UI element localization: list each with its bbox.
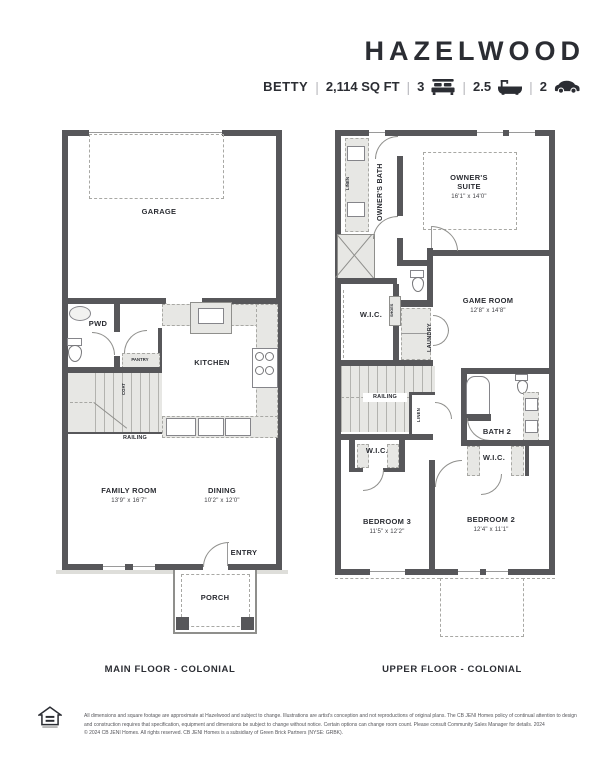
baths-count: 2.5 <box>473 79 491 94</box>
room-label-kitchen: KITCHEN <box>180 359 244 368</box>
window <box>477 130 503 136</box>
wall <box>525 446 529 476</box>
wall <box>335 569 370 575</box>
room-dims-bedroom2: 12'4" x 11'1" <box>449 527 533 533</box>
plan-title: HAZELWOOD <box>365 38 586 65</box>
wall <box>429 460 435 569</box>
room-label-wic-bed3: W.I.C. <box>354 447 400 456</box>
closet-label-linen-mid: LINEN <box>417 400 427 430</box>
room-dims-family: 13'9" x 16'7" <box>89 498 169 504</box>
room-label-owners-bath: OWNER'S BATH <box>377 158 390 226</box>
equal-housing-logo <box>38 706 62 728</box>
beds-count: 3 <box>417 79 424 94</box>
window-line <box>370 571 405 572</box>
wall <box>222 130 282 136</box>
wall <box>385 130 477 136</box>
railing-label: RAILING <box>363 393 407 402</box>
room-label-wic-owner: W.I.C. <box>346 311 396 320</box>
window <box>509 130 535 136</box>
floor-plan-sheet: HAZELWOOD BETTY | 2,114 SQ FT | 3 | 2.5 … <box>0 0 609 768</box>
wall <box>335 278 397 284</box>
door-arc <box>467 418 490 441</box>
door-arc <box>435 402 452 419</box>
toilet <box>412 277 424 292</box>
window-line <box>509 132 535 133</box>
burner <box>255 366 264 375</box>
wall <box>549 130 555 575</box>
porch-wall <box>255 570 257 634</box>
porch-wall <box>173 632 257 634</box>
door-arc <box>363 470 384 491</box>
porch-column <box>241 617 254 630</box>
disclaimer: All dimensions and square footage are ap… <box>84 712 584 738</box>
sqft-value: 2,114 SQ FT <box>326 79 400 94</box>
washer-dryer-divider <box>401 333 429 334</box>
door-arc <box>435 460 462 487</box>
appliance <box>225 418 251 436</box>
roof-line <box>522 578 555 580</box>
room-label-bedroom2: BEDROOM 2 <box>449 516 533 525</box>
railing-label: RAILING <box>112 434 158 443</box>
window-line <box>103 566 125 567</box>
door-arc <box>375 136 398 159</box>
upper-floor-plan: LINEN OWNER'S BATH OWNER'S SUITE 16'1" x… <box>335 130 555 642</box>
room-label-owners-suite: OWNER'S SUITE <box>439 174 499 191</box>
wall <box>461 368 555 374</box>
separator: | <box>462 79 466 95</box>
window-line <box>477 132 503 133</box>
door-arc <box>433 315 449 331</box>
separator: | <box>407 79 411 95</box>
foundation-step <box>257 570 288 574</box>
wall <box>397 156 403 216</box>
disclaimer-line1: All dimensions and square footage are ap… <box>84 712 584 721</box>
window <box>369 130 385 136</box>
room-dims-bedroom3: 11'5" x 12'2" <box>347 529 427 535</box>
car-icon <box>554 79 580 94</box>
wall <box>335 130 341 575</box>
roof-outline <box>440 578 524 637</box>
bath-icon <box>498 78 522 95</box>
room-label-garage: GARAGE <box>119 208 199 217</box>
window-line <box>486 571 508 572</box>
closet-label-coat: COAT <box>122 376 132 402</box>
door-arc <box>481 474 502 495</box>
garage-count: 2 <box>540 79 547 94</box>
window-line <box>458 571 480 572</box>
pwd-sink <box>69 306 91 321</box>
porch-column <box>176 617 189 630</box>
pwd-toilet <box>68 345 82 362</box>
door-arc <box>92 332 115 355</box>
room-label-entry: ENTRY <box>218 549 270 558</box>
bed-icon <box>431 79 455 95</box>
burner <box>255 352 264 361</box>
window <box>370 569 405 575</box>
room-dims-dining: 10'2" x 12'0" <box>187 498 257 504</box>
closet-label-linen-top: LINEN <box>346 170 358 196</box>
foundation-step <box>56 570 173 574</box>
garage-door-line <box>89 132 222 133</box>
room-label-game: GAME ROOM <box>448 297 528 306</box>
window-line <box>369 132 385 133</box>
kitchen-sink <box>198 308 224 324</box>
burner <box>265 352 274 361</box>
vanity-sink <box>347 146 365 161</box>
porch-wall <box>173 570 175 634</box>
vanity-sink <box>525 398 538 411</box>
separator: | <box>315 79 319 95</box>
separator: | <box>529 79 533 95</box>
main-floor-plan: GARAGE PWD PANTRY COAT RAILING <box>62 130 282 642</box>
wall <box>508 569 555 575</box>
garage-parking-outline <box>89 134 224 199</box>
room-label-bedroom3: BEDROOM 3 <box>347 518 427 527</box>
upper-floor-caption: UPPER FLOOR - COLONIAL <box>352 664 552 675</box>
wall <box>409 394 412 434</box>
plan-info-bar: BETTY | 2,114 SQ FT | 3 | 2.5 | 2 <box>263 78 580 95</box>
disclaimer-line2: and construction requires that specifica… <box>84 721 584 730</box>
burner <box>265 366 274 375</box>
room-label-porch: PORCH <box>190 594 240 603</box>
disclaimer-line3: © 2024 CB JENI Homes. All rights reserve… <box>84 729 584 738</box>
roof-line <box>335 578 440 580</box>
room-label-dining: DINING <box>187 487 257 496</box>
room-label-family: FAMILY ROOM <box>89 487 169 496</box>
window <box>486 569 508 575</box>
dishwasher <box>198 418 224 436</box>
island-sink <box>166 418 196 436</box>
room-label-wic-bed2: W.I.C. <box>466 454 522 463</box>
door-arc <box>433 330 449 346</box>
main-floor-caption: MAIN FLOOR - COLONIAL <box>70 664 270 675</box>
landing-line <box>70 402 92 404</box>
room-dims-game: 12'8" x 14'8" <box>448 308 528 314</box>
door-leaf <box>431 226 432 250</box>
vanity-sink <box>347 202 365 217</box>
elevation-name: BETTY <box>263 79 308 94</box>
shelf-line <box>343 290 345 358</box>
window-line <box>133 566 155 567</box>
window <box>458 569 480 575</box>
room-label-pwd: PWD <box>78 320 118 329</box>
room-dims-owners-suite: 16'1" x 14'0" <box>439 194 499 200</box>
door-arc <box>124 330 147 353</box>
tub <box>466 376 490 416</box>
wall <box>405 569 458 575</box>
vanity-sink <box>525 420 538 433</box>
room-label-pantry: PANTRY <box>122 358 158 363</box>
wall <box>349 468 363 472</box>
wall <box>383 468 405 472</box>
wall <box>409 392 435 395</box>
wall <box>427 248 433 307</box>
